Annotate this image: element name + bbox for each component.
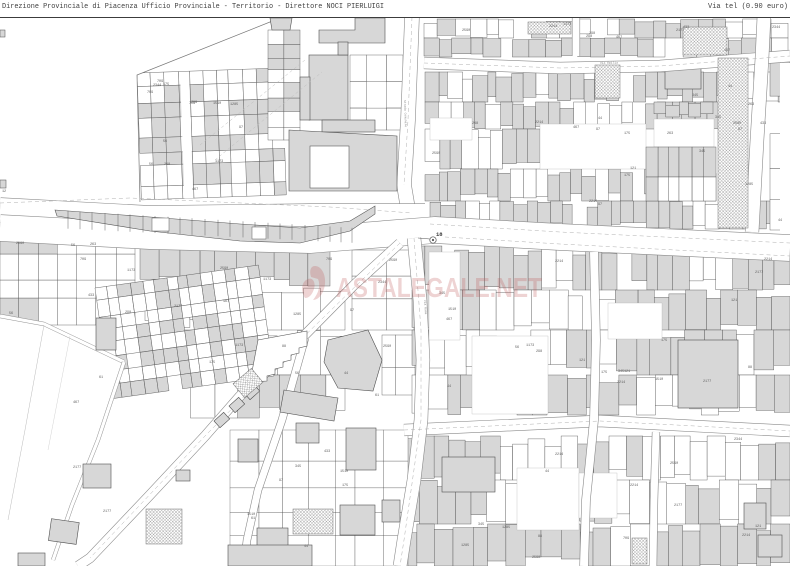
svg-text:Via tel (0.90 euro): Via tel (0.90 euro) bbox=[708, 3, 788, 11]
svg-text:1173: 1173 bbox=[127, 269, 135, 273]
svg-text:2344: 2344 bbox=[734, 438, 742, 442]
svg-text:2177: 2177 bbox=[73, 466, 81, 470]
svg-text:2177: 2177 bbox=[674, 504, 682, 508]
svg-text:1510: 1510 bbox=[340, 470, 348, 474]
svg-text:121: 121 bbox=[731, 299, 737, 303]
svg-text:345: 345 bbox=[692, 94, 698, 98]
svg-text:88: 88 bbox=[282, 345, 286, 349]
svg-text:175: 175 bbox=[661, 339, 667, 343]
svg-text:97: 97 bbox=[738, 128, 742, 132]
svg-text:467: 467 bbox=[446, 318, 452, 322]
svg-text:175: 175 bbox=[163, 83, 169, 87]
svg-text:175: 175 bbox=[209, 361, 215, 365]
svg-text:298: 298 bbox=[586, 35, 592, 39]
svg-text:345: 345 bbox=[295, 465, 301, 469]
svg-text:18: 18 bbox=[436, 231, 443, 238]
svg-text:433: 433 bbox=[88, 294, 94, 298]
svg-text:2214: 2214 bbox=[549, 25, 557, 29]
svg-text:263: 263 bbox=[667, 132, 673, 136]
svg-text:1285: 1285 bbox=[461, 544, 469, 548]
svg-text:1510: 1510 bbox=[213, 102, 221, 106]
svg-text:263: 263 bbox=[748, 103, 754, 107]
svg-text:56: 56 bbox=[71, 244, 75, 248]
svg-text:61: 61 bbox=[375, 394, 379, 398]
svg-text:433: 433 bbox=[760, 122, 766, 126]
svg-text:2590: 2590 bbox=[532, 556, 540, 560]
svg-text:175: 175 bbox=[624, 174, 630, 178]
svg-text:97: 97 bbox=[596, 128, 600, 132]
svg-text:56: 56 bbox=[295, 372, 299, 376]
svg-text:88: 88 bbox=[748, 366, 752, 370]
svg-text:2590: 2590 bbox=[383, 345, 391, 349]
svg-text:44: 44 bbox=[545, 470, 549, 474]
svg-text:467: 467 bbox=[73, 401, 79, 405]
svg-text:2214: 2214 bbox=[589, 200, 597, 204]
svg-text:44: 44 bbox=[778, 219, 782, 223]
svg-text:88: 88 bbox=[538, 535, 542, 539]
svg-text:97: 97 bbox=[598, 203, 602, 207]
svg-text:1173: 1173 bbox=[235, 344, 243, 348]
svg-text:44: 44 bbox=[447, 385, 451, 389]
svg-text:298: 298 bbox=[164, 163, 170, 167]
svg-text:263: 263 bbox=[90, 243, 96, 247]
svg-text:709: 709 bbox=[326, 258, 332, 262]
svg-text:2177: 2177 bbox=[174, 305, 182, 309]
svg-text:2214: 2214 bbox=[535, 121, 543, 125]
svg-text:709: 709 bbox=[623, 537, 629, 541]
svg-text:1173: 1173 bbox=[526, 344, 534, 348]
svg-text:709: 709 bbox=[191, 101, 197, 105]
svg-text:2590: 2590 bbox=[432, 152, 440, 156]
svg-text:298: 298 bbox=[125, 311, 131, 315]
svg-text:121: 121 bbox=[624, 370, 630, 374]
svg-text:56: 56 bbox=[9, 312, 13, 316]
svg-text:2214: 2214 bbox=[617, 381, 625, 385]
svg-text:2214: 2214 bbox=[764, 258, 772, 262]
svg-text:2214: 2214 bbox=[555, 453, 563, 457]
svg-text:1285: 1285 bbox=[293, 313, 301, 317]
svg-text:61: 61 bbox=[251, 517, 255, 521]
svg-text:1510: 1510 bbox=[448, 308, 456, 312]
svg-text:97: 97 bbox=[279, 479, 283, 483]
svg-text:2177: 2177 bbox=[103, 510, 111, 514]
svg-text:175: 175 bbox=[624, 132, 630, 136]
svg-text:175: 175 bbox=[342, 484, 348, 488]
svg-text:97: 97 bbox=[239, 126, 243, 130]
svg-text:44: 44 bbox=[728, 85, 732, 89]
svg-text:345: 345 bbox=[715, 116, 721, 120]
svg-text:2177: 2177 bbox=[703, 380, 711, 384]
svg-text:2214: 2214 bbox=[742, 534, 750, 538]
svg-text:2590: 2590 bbox=[733, 122, 741, 126]
svg-text:121: 121 bbox=[630, 167, 636, 171]
svg-text:2590: 2590 bbox=[220, 267, 228, 271]
svg-text:1173: 1173 bbox=[563, 23, 571, 27]
svg-text:56: 56 bbox=[515, 346, 519, 350]
svg-text:467: 467 bbox=[573, 126, 579, 130]
svg-text:467: 467 bbox=[223, 300, 229, 304]
svg-text:1510: 1510 bbox=[247, 513, 255, 517]
svg-text:467: 467 bbox=[192, 188, 198, 192]
svg-text:467: 467 bbox=[616, 36, 622, 40]
svg-text:433: 433 bbox=[324, 450, 330, 454]
svg-text:12: 12 bbox=[2, 190, 6, 194]
svg-text:2590: 2590 bbox=[462, 29, 470, 33]
svg-text:2590: 2590 bbox=[670, 462, 678, 466]
svg-text:433: 433 bbox=[683, 26, 689, 30]
svg-text:175: 175 bbox=[601, 371, 607, 375]
svg-text:298: 298 bbox=[536, 350, 542, 354]
svg-text:44: 44 bbox=[344, 372, 348, 376]
svg-text:44: 44 bbox=[304, 545, 308, 549]
svg-text:56: 56 bbox=[163, 140, 167, 144]
svg-text:56: 56 bbox=[149, 163, 153, 167]
svg-text:345: 345 bbox=[699, 150, 705, 154]
svg-text:2214: 2214 bbox=[630, 484, 638, 488]
svg-text:44: 44 bbox=[598, 117, 602, 121]
svg-text:2590: 2590 bbox=[389, 259, 397, 263]
svg-text:1285: 1285 bbox=[230, 103, 238, 107]
svg-text:121: 121 bbox=[579, 359, 585, 363]
svg-text:1173: 1173 bbox=[215, 160, 223, 164]
svg-text:Direzione Provinciale di Piace: Direzione Provinciale di Piacenza Uffici… bbox=[2, 3, 384, 11]
svg-text:2590: 2590 bbox=[16, 242, 24, 246]
svg-text:1285: 1285 bbox=[745, 183, 753, 187]
svg-text:1285: 1285 bbox=[502, 526, 510, 530]
svg-text:467: 467 bbox=[724, 49, 730, 53]
svg-text:ASTALEGALE.NET: ASTALEGALE.NET bbox=[336, 272, 542, 303]
svg-text:2344: 2344 bbox=[772, 26, 780, 30]
svg-text:97: 97 bbox=[350, 309, 354, 313]
svg-text:298: 298 bbox=[472, 122, 478, 126]
svg-text:2177: 2177 bbox=[755, 271, 763, 275]
svg-text:709: 709 bbox=[147, 91, 153, 95]
svg-text:345: 345 bbox=[478, 523, 484, 527]
svg-text:2344: 2344 bbox=[153, 84, 161, 88]
svg-text:121: 121 bbox=[755, 525, 761, 529]
svg-text:709: 709 bbox=[80, 258, 86, 262]
svg-text:61: 61 bbox=[99, 376, 103, 380]
svg-text:1510: 1510 bbox=[655, 378, 663, 382]
svg-text:Via Emilia: Via Emilia bbox=[600, 61, 618, 65]
svg-text:1173: 1173 bbox=[263, 278, 271, 282]
svg-text:2214: 2214 bbox=[555, 260, 563, 264]
